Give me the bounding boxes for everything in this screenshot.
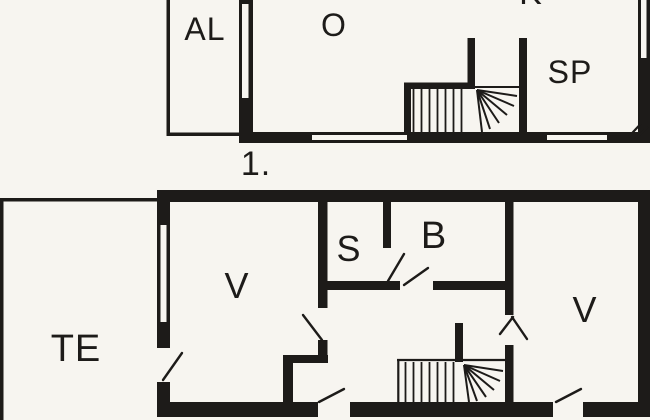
room-label-b: B <box>421 217 447 255</box>
lower-staircase <box>397 360 505 402</box>
floorplan-page: AL O K SP 1. TE V S B V <box>0 0 650 420</box>
lower-floor-walls <box>0 190 650 420</box>
room-label-al: AL <box>184 13 225 45</box>
upper-staircase <box>414 87 520 132</box>
room-label-sp: SP <box>548 56 593 88</box>
room-label-te: TE <box>51 330 102 368</box>
room-label-v-left: V <box>224 268 249 304</box>
room-label-k: K <box>519 0 543 10</box>
floor-number-label: 1. <box>241 147 271 181</box>
room-label-o: O <box>321 9 347 41</box>
room-label-v-right: V <box>572 292 597 328</box>
room-label-s: S <box>336 231 361 267</box>
